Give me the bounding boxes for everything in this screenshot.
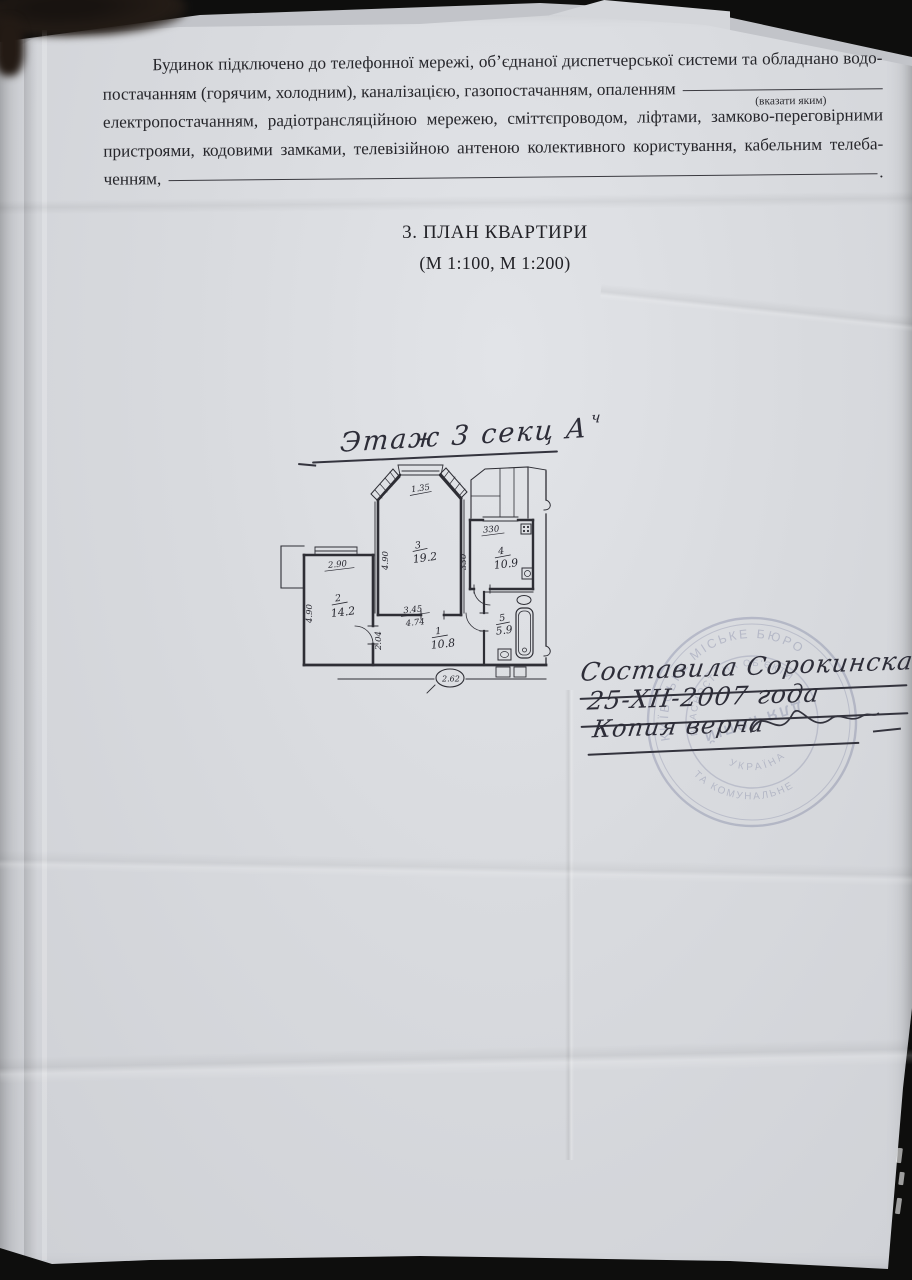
section-scale: (М 1:100, М 1:200) bbox=[255, 253, 735, 274]
svg-text:10.8: 10.8 bbox=[430, 636, 456, 651]
hall-dims: 3.45 4.74 bbox=[400, 604, 431, 630]
svg-text:3.45: 3.45 bbox=[403, 604, 423, 616]
sink-icon bbox=[522, 568, 533, 579]
room-4-label: 4 10.9 bbox=[492, 544, 519, 572]
toilet-icon bbox=[498, 649, 511, 660]
dim-oval: 2.62 bbox=[441, 675, 460, 684]
room-3-label: 3 19.2 bbox=[410, 538, 438, 566]
intro-paragraph: Будинок підключено до телефонної мережі,… bbox=[102, 44, 883, 194]
svg-text:10.9: 10.9 bbox=[493, 556, 519, 572]
washbasin-icon bbox=[517, 596, 531, 605]
signature bbox=[744, 695, 886, 746]
paragraph-line-5-text: ченням, bbox=[103, 166, 161, 195]
section-title: 3. ПЛАН КВАРТИРИ bbox=[255, 222, 735, 244]
dim-room2-depth: 4.90 bbox=[305, 603, 315, 624]
room-1-label: 1 10.8 bbox=[429, 624, 456, 651]
dim-room2-width: 2.90 bbox=[327, 559, 348, 571]
edge-mark-2 bbox=[898, 1172, 905, 1186]
svg-text:5: 5 bbox=[499, 613, 506, 625]
svg-text:5.9: 5.9 bbox=[495, 624, 513, 638]
plan-labels: 1.35 4.90 3 19.2 330 330 4 10.9 2.90 bbox=[305, 483, 519, 684]
room-2-label: 2 14.2 bbox=[328, 591, 355, 620]
svg-text:19.2: 19.2 bbox=[412, 550, 438, 566]
stove-icon bbox=[521, 524, 531, 534]
specify-which-hint: (вказати яким) bbox=[701, 86, 881, 116]
plan-title-superscript: ч bbox=[590, 408, 603, 427]
dark-corner-object-2 bbox=[0, 18, 24, 76]
paragraph-end-period: . bbox=[879, 159, 884, 188]
svg-text:1: 1 bbox=[435, 626, 442, 638]
room-4-walls bbox=[470, 467, 533, 605]
blank-line-cable bbox=[168, 174, 877, 182]
corridor-wall bbox=[528, 467, 550, 665]
svg-text:4: 4 bbox=[497, 546, 505, 558]
scanned-document-photo: Будинок підключено до телефонної мережі,… bbox=[0, 0, 912, 1280]
section-heading: 3. ПЛАН КВАРТИРИ (М 1:100, М 1:200) bbox=[255, 222, 735, 274]
edge-mark-3 bbox=[895, 1198, 902, 1215]
dim-room4-depth: 330 bbox=[459, 553, 469, 570]
handwritten-notes: Составила Сорокинская 25-ХІІ-2007 года К… bbox=[574, 640, 912, 772]
svg-text:2: 2 bbox=[333, 593, 341, 605]
svg-text:14.2: 14.2 bbox=[330, 604, 356, 620]
handwriting-copy-correct: Копия верна bbox=[591, 709, 767, 743]
outer-bottom-wall bbox=[304, 665, 546, 693]
room-5-label: 5 5.9 bbox=[494, 612, 514, 638]
svg-text:4.74: 4.74 bbox=[404, 617, 425, 629]
dim-room3-depth: 4.90 bbox=[381, 550, 391, 571]
dim-hall-left: 2.04 bbox=[374, 631, 384, 651]
handwriting-underline-3 bbox=[588, 742, 860, 756]
floor-plan-drawing: 1.35 4.90 3 19.2 330 330 4 10.9 2.90 bbox=[278, 458, 588, 708]
edge-mark-1 bbox=[896, 1148, 903, 1163]
